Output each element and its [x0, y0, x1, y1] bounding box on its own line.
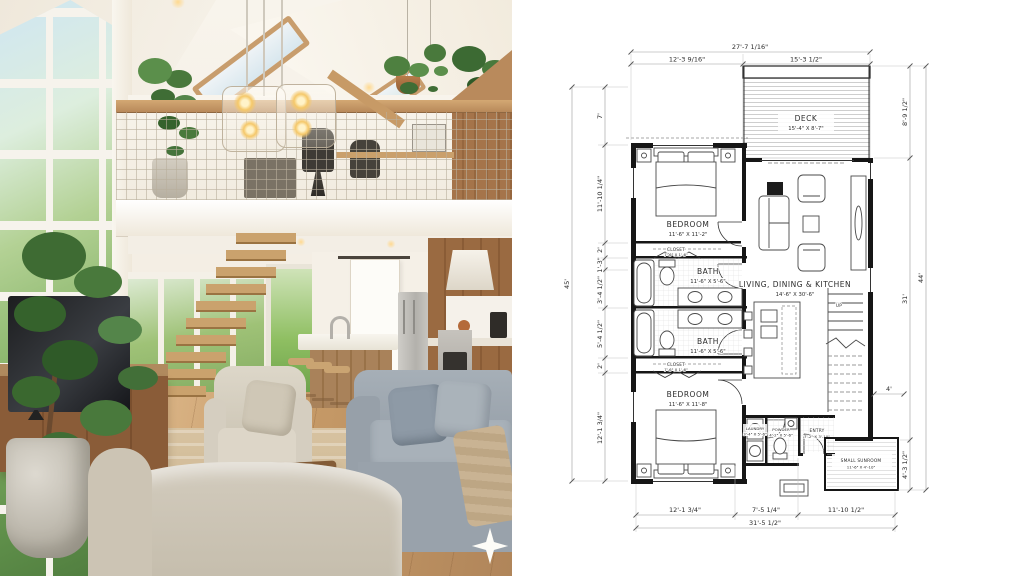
powder-fixtures	[768, 418, 798, 463]
bedroom1-label: BEDROOM	[667, 220, 710, 229]
pendant-rod	[281, 0, 283, 88]
dim-left-3: 1'-3"	[596, 257, 604, 272]
dim-left-0: 7'	[596, 113, 604, 119]
dim-left-6: 2'	[596, 363, 604, 369]
armchair-pillow	[241, 379, 298, 437]
dim-left-overall: 45'	[563, 279, 571, 289]
deck: DECK 15'-4" X 8'-7"	[743, 66, 870, 158]
dim-right-1: 31'	[901, 294, 909, 304]
closet2-size: 7'-6" X 1'-6"	[664, 367, 688, 372]
floor-plan-panel: DECK 15'-4" X 8'-7"	[512, 0, 1024, 576]
sliding-door	[760, 161, 854, 164]
pendant-rod	[263, 0, 265, 96]
stair-tread	[176, 335, 236, 344]
dim-right-2: 4'-3 1/2"	[901, 451, 909, 479]
dim-top-left: 12'-3 9/16"	[669, 56, 705, 64]
stair-tread	[226, 250, 286, 259]
sunroom-label: SMALL SUNROOM	[841, 458, 882, 464]
loft-palm-plant	[138, 58, 172, 84]
ceiling-light	[386, 240, 396, 248]
dim-bottom-2: 11'-10 1/2"	[828, 506, 864, 514]
bedroom2-furniture	[637, 410, 735, 478]
living-size: 14'-6" X 30'-6"	[776, 292, 815, 298]
screenshot-canvas: DECK 15'-4" X 8'-7"	[0, 0, 1024, 576]
fiddle-leaf-plant	[22, 232, 86, 280]
laundry-size: 3'-4" X 5'-6"	[743, 432, 767, 437]
hanging-plant-trailing	[424, 44, 446, 62]
dim-left-5: 5'-4 1/2"	[596, 320, 604, 348]
fridge-handle	[403, 300, 405, 334]
dim-top-overall: 27'-7 1/16"	[732, 43, 768, 51]
stair-tread	[206, 284, 266, 293]
loveseat-arm	[88, 448, 152, 576]
powder-label: POWDER	[772, 427, 790, 432]
dim-left-1: 11'-10 1/4"	[596, 176, 604, 212]
stair-tread	[236, 233, 296, 242]
faucet	[330, 316, 350, 339]
dim-bottom-overall: 31'-5 1/2"	[749, 519, 781, 527]
dim-stair-offset: 4'	[886, 385, 892, 393]
bedroom1-furniture	[637, 148, 735, 216]
bedroom2-label: BEDROOM	[667, 390, 710, 399]
coffee-maker	[490, 312, 507, 338]
bath2-label: BATH	[697, 337, 719, 346]
hanging-planter-pot	[396, 76, 420, 94]
sunroom-size: 11'-6" X 4'-10"	[847, 465, 876, 470]
loft-floor-fascia	[116, 200, 512, 237]
stair-tread	[166, 352, 226, 361]
plant-hanger-string	[430, 0, 431, 50]
living-furniture	[759, 175, 866, 271]
bath1-size: 11'-6" X 5'-6"	[690, 279, 725, 285]
tv-screen	[8, 296, 130, 412]
bar-stool	[324, 366, 350, 373]
bath1-fixtures	[634, 259, 742, 306]
kitchen-island	[744, 302, 800, 378]
powder-size: 4'-2" X 5'-6"	[769, 433, 793, 438]
corner-plant-top-right	[452, 46, 486, 72]
floor-plan-drawing: DECK 15'-4" X 8'-7"	[558, 10, 1024, 562]
dim-left-2: 2'	[596, 247, 604, 253]
pendant-rod	[246, 0, 248, 92]
range-hood	[446, 250, 494, 290]
ceiling-light	[296, 238, 306, 246]
dim-left-7: 12'-1 3/4"	[596, 412, 604, 444]
closet1-size: 7'-6" X 1'-6"	[664, 252, 688, 257]
stair-tread	[196, 301, 256, 310]
bedroom1-size: 11'-6" X 11'-2"	[669, 232, 708, 238]
deck-label: DECK	[795, 114, 818, 123]
plan-stairs: UP	[826, 288, 865, 412]
dim-bottom-1: 7'-5 1/4"	[752, 506, 780, 514]
laundry-label: LAUNDRY	[746, 426, 765, 431]
deck-size: 15'-4" X 8'-7"	[788, 126, 823, 132]
plant-pot	[6, 438, 90, 558]
bedroom2-size: 11'-6" X 11'-8"	[669, 402, 708, 408]
bath2-size: 11'-6" X 5'-6"	[690, 349, 725, 355]
pendant-bulb	[234, 92, 256, 114]
front-stoop	[780, 480, 808, 496]
pendant-bulb	[240, 120, 260, 140]
stair-tread	[216, 267, 276, 276]
living-label: LIVING, DINING & KITCHEN	[739, 280, 851, 289]
dim-left-4: 3'-4 1/2"	[596, 276, 604, 304]
dim-bottom-0: 12'-1 3/4"	[669, 506, 701, 514]
dim-top-right: 15'-3 1/2"	[790, 56, 822, 64]
dim-right-overall: 44'	[917, 273, 925, 283]
hanging-plant	[384, 56, 410, 76]
pendant-bulb	[292, 118, 312, 138]
dim-right-0: 8'-9 1/2"	[901, 98, 909, 126]
fridge-handle	[413, 300, 415, 334]
stair-tread	[186, 318, 246, 327]
interior-photo	[0, 0, 512, 576]
bath1-label: BATH	[697, 267, 719, 276]
pendant-bulb	[290, 90, 312, 112]
bath2-fixtures	[634, 310, 742, 356]
stairs-up-label: UP	[836, 303, 842, 309]
